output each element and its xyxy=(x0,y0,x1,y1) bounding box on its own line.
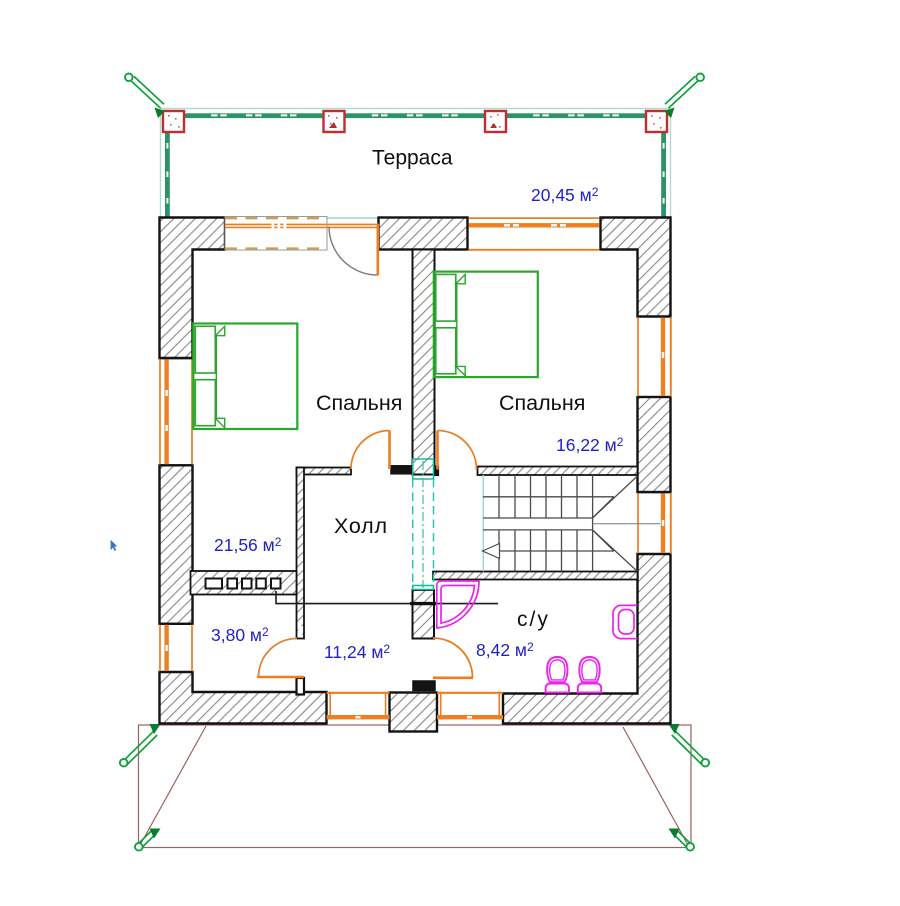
svg-text:Терраса: Терраса xyxy=(372,147,453,170)
svg-text:20,45 м2: 20,45 м2 xyxy=(531,185,599,205)
svg-text:16,22 м2: 16,22 м2 xyxy=(556,435,624,455)
svg-text:с/у: с/у xyxy=(517,608,550,631)
svg-text:Спальня: Спальня xyxy=(499,391,585,415)
svg-text:3,80 м2: 3,80 м2 xyxy=(211,625,269,645)
svg-text:11,24 м2: 11,24 м2 xyxy=(324,642,390,662)
svg-text:Спальня: Спальня xyxy=(316,391,402,415)
svg-text:8,42 м2: 8,42 м2 xyxy=(476,640,534,660)
svg-text:Холл: Холл xyxy=(334,514,388,538)
svg-text:21,56 м2: 21,56 м2 xyxy=(214,535,282,555)
